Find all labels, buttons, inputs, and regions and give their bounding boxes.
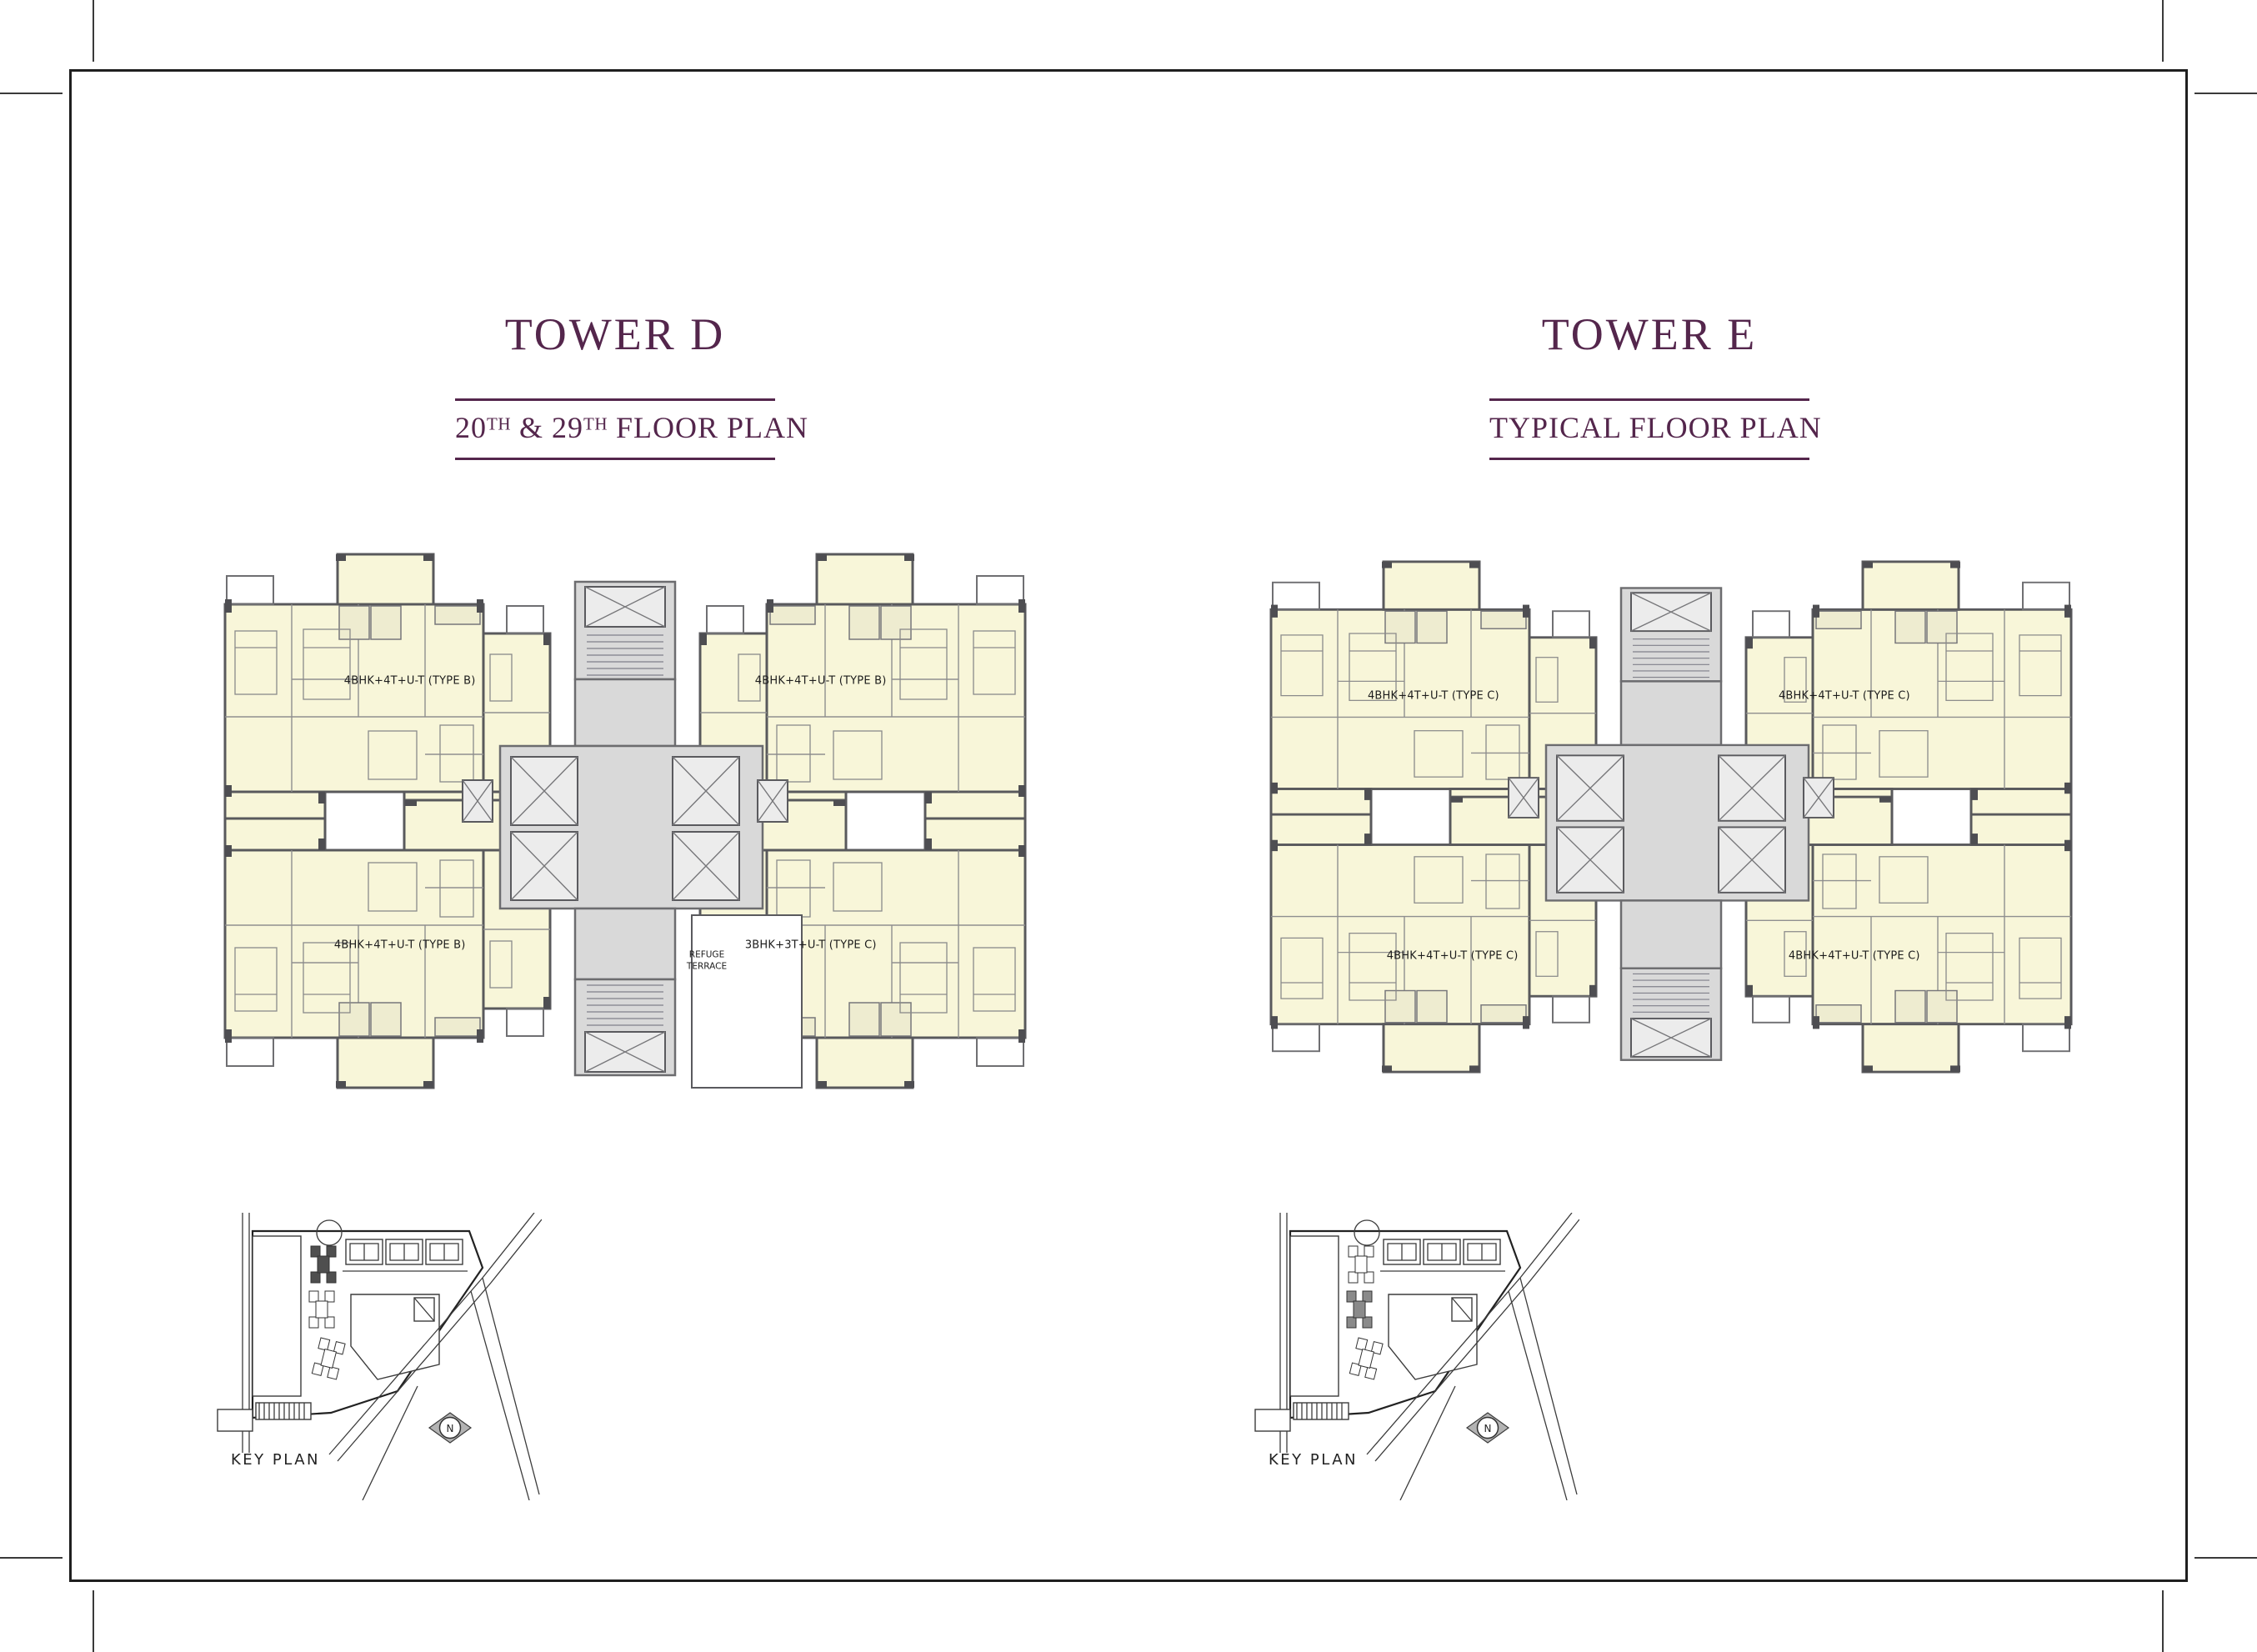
- subtitle-superscript: TH: [583, 414, 608, 434]
- crop-mark: [2162, 1590, 2164, 1652]
- tower-d-title-block: TOWER D 20TH & 29TH FLOOR PLAN: [455, 312, 775, 462]
- unit-label-bottom-left: 4BHK+4T+U-T (TYPE C): [1387, 949, 1519, 962]
- tower-e-title-block: TOWER E TYPICAL FLOOR PLAN: [1489, 312, 1809, 462]
- key-plan-label: KEY PLAN: [231, 1451, 320, 1469]
- unit-label-top-right: 4BHK+4T+U-T (TYPE B): [755, 675, 887, 688]
- subtitle-text: & 29: [511, 411, 583, 444]
- floor-plan-drawing: [1259, 542, 2084, 1092]
- crop-mark: [0, 1557, 63, 1559]
- refuge-line-2: TERRACE: [687, 961, 727, 971]
- refuge-terrace-label: REFUGETERRACE: [687, 950, 727, 973]
- tower-d-floor-plan: 4BHK+4T+U-T (TYPE B) 4BHK+4T+U-T (TYPE B…: [213, 533, 1038, 1109]
- floor-plan-drawing: [213, 533, 1038, 1109]
- refuge-line-1: REFUGE: [689, 950, 724, 960]
- crop-mark: [2194, 1557, 2257, 1559]
- unit-label-bottom-right: 4BHK+4T+U-T (TYPE C): [1789, 949, 1920, 962]
- crop-mark: [0, 93, 63, 94]
- title-rule: [1489, 458, 1809, 460]
- crop-mark: [2194, 93, 2257, 94]
- tower-e-title: TOWER E: [1489, 312, 1809, 357]
- brochure-page: N TOWER D 20TH & 29TH FLOOR PLAN 4BHK+4T…: [0, 0, 2257, 1652]
- unit-label-bottom-left: 4BHK+4T+U-T (TYPE B): [334, 939, 466, 952]
- subtitle-text: FLOOR PLAN: [608, 411, 808, 444]
- tower-d-title: TOWER D: [455, 312, 775, 357]
- tower-e-key-plan: KEY PLAN: [1242, 1213, 1579, 1500]
- tower-d-key-plan: KEY PLAN: [204, 1213, 542, 1500]
- title-rule: [455, 458, 775, 460]
- tower-e-subtitle: TYPICAL FLOOR PLAN: [1489, 407, 1809, 448]
- subtitle-text: TYPICAL FLOOR PLAN: [1489, 411, 1822, 444]
- unit-label-top-left: 4BHK+4T+U-T (TYPE C): [1368, 689, 1499, 702]
- subtitle-superscript: TH: [487, 414, 511, 434]
- unit-label-top-left: 4BHK+4T+U-T (TYPE B): [344, 675, 476, 688]
- crop-mark: [93, 0, 94, 62]
- title-rule: [1489, 398, 1809, 401]
- subtitle-text: 20: [455, 411, 487, 444]
- crop-mark: [2162, 0, 2164, 62]
- key-plan-label: KEY PLAN: [1269, 1451, 1358, 1469]
- crop-mark: [93, 1590, 94, 1652]
- unit-label-top-right: 4BHK+4T+U-T (TYPE C): [1779, 689, 1910, 702]
- tower-e-floor-plan: 4BHK+4T+U-T (TYPE C) 4BHK+4T+U-T (TYPE C…: [1259, 542, 2084, 1092]
- unit-label-bottom-right: 3BHK+3T+U-T (TYPE C): [745, 939, 877, 952]
- title-rule: [455, 398, 775, 401]
- tower-d-subtitle: 20TH & 29TH FLOOR PLAN: [455, 407, 775, 448]
